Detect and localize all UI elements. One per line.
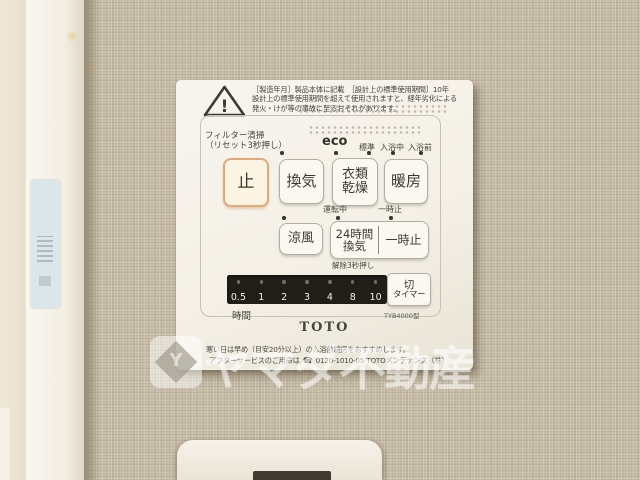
- bathroom-control-panel: ! ［製造年月］製品本体に記載 ［設計上の標準使用期間］10年 設計上の標準使用…: [176, 80, 473, 370]
- cool-breeze-button: 涼風: [279, 223, 323, 255]
- svg-text:!: !: [221, 97, 229, 117]
- warning-line1: ［製造年月］製品本体に記載 ［設計上の標準使用期間］10年: [252, 85, 472, 94]
- warning-triangle-icon: !: [203, 85, 246, 117]
- operating-led: [336, 216, 340, 220]
- timer-step: 3: [296, 275, 319, 304]
- off-timer-line2: タイマー: [393, 291, 425, 300]
- timer-value: 0.5: [231, 293, 246, 303]
- filter-reset-line: （リセット3秒押し）: [205, 141, 287, 151]
- light-switch-plate: [177, 440, 382, 480]
- timer-step: 1: [250, 275, 273, 304]
- frame-shadow-seam: [84, 0, 100, 480]
- timer-display-strip: 0.5 1 2 3 4 8 10: [227, 275, 387, 304]
- vent-led: [280, 151, 284, 155]
- vent24-section: 24時間 換気: [331, 226, 379, 254]
- standard-led: [367, 151, 371, 155]
- sticker-marks: [39, 276, 51, 286]
- clothes-dry-line1: 衣類: [342, 168, 368, 182]
- timer-value: 10: [370, 293, 382, 303]
- timer-value: 1: [258, 293, 264, 303]
- timer-led: [260, 280, 264, 284]
- heating-button: 暖房: [384, 159, 428, 204]
- timer-value: 8: [350, 293, 356, 303]
- off-timer-button: 切 タイマー: [387, 273, 431, 306]
- eco-led: [334, 151, 338, 155]
- timer-led: [351, 280, 355, 284]
- clothes-dry-button: 衣類 乾燥: [332, 158, 378, 206]
- timer-value: 4: [327, 293, 333, 303]
- braille-dots-row1: [298, 104, 446, 113]
- filter-clean-line: フィルター清掃: [205, 131, 287, 141]
- vent24-pause-button: 24時間 換気 一時止: [330, 221, 429, 259]
- timer-led: [305, 280, 309, 284]
- timer-step: 2: [273, 275, 296, 304]
- ventilation-button: 換気: [279, 159, 324, 204]
- photo-wall-scene: ! ［製造年月］製品本体に記載 ［設計上の標準使用期間］10年 設計上の標準使用…: [0, 0, 640, 480]
- sticker-marks: [37, 236, 53, 262]
- timer-led: [282, 280, 286, 284]
- eco-label: eco: [322, 134, 347, 149]
- bathing-led: [391, 151, 395, 155]
- filter-clean-label: フィルター清掃 （リセット3秒押し）: [205, 131, 287, 151]
- timer-step: 10: [364, 275, 387, 304]
- stop-button: 止: [223, 158, 269, 207]
- off-timer-line1: 切: [404, 280, 415, 291]
- wall-speck: [66, 30, 78, 43]
- watermark-logo-letter: Y: [150, 350, 202, 371]
- pre-bath-led: [419, 151, 423, 155]
- clothes-dry-line2: 乾燥: [342, 182, 368, 196]
- timer-value: 3: [304, 293, 310, 303]
- vent24-line2: 換気: [343, 240, 366, 252]
- operating-label: 運転中: [323, 204, 347, 215]
- warning-line2: 設計上の標準使用期間を超えて使用されますと、経年劣化による: [252, 94, 472, 103]
- timer-value: 2: [281, 293, 287, 303]
- timer-led: [328, 280, 332, 284]
- cool-led: [282, 216, 286, 220]
- frame-sticker: [31, 180, 60, 308]
- release-hold-label: 解除3秒押し: [332, 260, 374, 271]
- switch-slot: [253, 471, 331, 480]
- watermark-text: ヤマダ不動産: [204, 330, 474, 399]
- model-number-label: TYB4000型: [384, 310, 419, 320]
- timer-step: 8: [341, 275, 364, 304]
- timer-step: 0.5: [227, 275, 250, 304]
- watermark-logo: Y: [150, 336, 202, 388]
- timer-led: [374, 280, 378, 284]
- timer-led: [237, 280, 241, 284]
- pause-led: [389, 216, 393, 220]
- left-wall-strip: [0, 408, 10, 480]
- pause-section: 一時止: [379, 234, 428, 247]
- timer-step: 4: [318, 275, 341, 304]
- pause-indicator-label: 一時止: [378, 204, 402, 215]
